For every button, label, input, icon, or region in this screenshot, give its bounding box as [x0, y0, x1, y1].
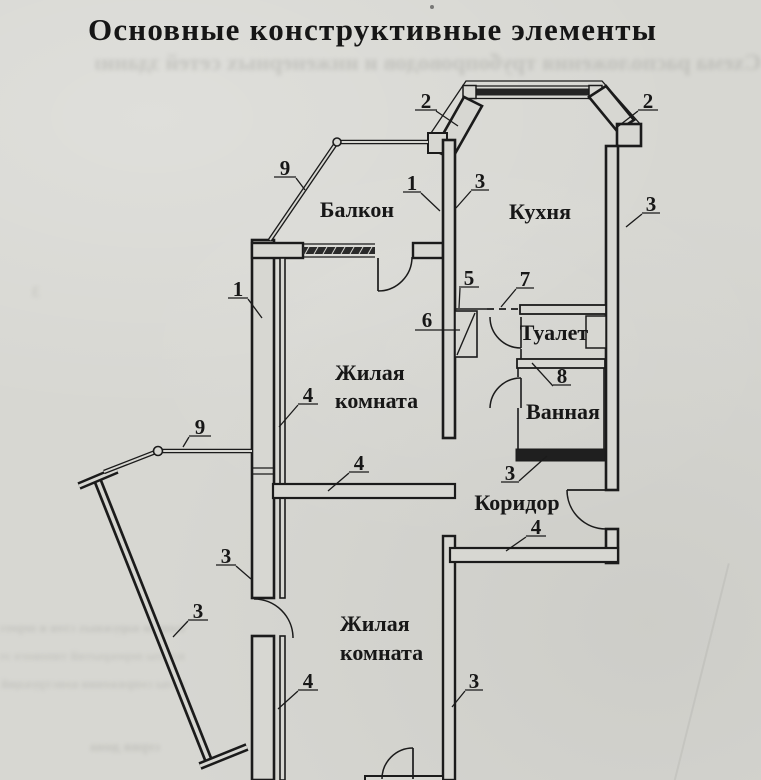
callout-3-kitchen-right: 3 [646, 192, 657, 216]
balcony1-railing [270, 138, 428, 240]
window-living1 [303, 244, 375, 257]
room-label-living2: комната [340, 640, 423, 665]
floor-plan-drawing: Балкон Кухня Жилая комната Туалет Ванная… [0, 0, 761, 780]
outer-wall-left-lower [252, 636, 274, 780]
callout-3-left-wall: 3 [221, 544, 232, 568]
wall-kitchen-right [606, 146, 618, 490]
callout-2-bay-left: 2 [421, 89, 432, 113]
callout-1-outer-wall: 1 [233, 277, 244, 301]
inner-wall-living2-lower [280, 636, 285, 780]
room-label-corridor: Коридор [474, 490, 559, 515]
vent-shaft [455, 311, 477, 357]
room-label-living1: Жилая [335, 360, 405, 385]
callout-4-living2: 4 [303, 669, 314, 693]
callout-3-kitchen-left: 3 [475, 169, 486, 193]
wall-bottom-stub [365, 776, 443, 780]
entrance-door-arc [567, 490, 606, 529]
bottom-door-arc [382, 748, 413, 779]
toilet-door-arc [490, 317, 521, 348]
pillar [617, 124, 641, 146]
wall-living1-top-right [413, 243, 443, 258]
room-label-kitchen: Кухня [509, 199, 571, 224]
duct-shaft [586, 316, 606, 348]
wall-kitchen-left [443, 140, 455, 438]
callout-8: 8 [557, 364, 568, 388]
room-label-toilet: Туалет [520, 320, 589, 345]
corridor-wall [450, 548, 618, 562]
wall-living2-right [443, 536, 455, 780]
callout-9-balcony2: 9 [195, 415, 206, 439]
railing-knob [154, 447, 163, 456]
callout-3-living2-right: 3 [469, 669, 480, 693]
railing-knob [333, 138, 341, 146]
room-label-living2: Жилая [340, 611, 410, 636]
room-label-living1: комната [335, 388, 418, 413]
callout-1-kitchen-wall: 1 [407, 171, 418, 195]
callout-6: 6 [422, 308, 433, 332]
outer-wall-left-upper [252, 240, 274, 598]
balcony2-railing [79, 447, 252, 767]
callout-4-corridor: 4 [531, 515, 542, 539]
balcony-door1-arc [378, 257, 412, 291]
callout-4-living1: 4 [303, 383, 314, 407]
callout-9-balcony1: 9 [280, 156, 291, 180]
wall-living1-top-left [252, 243, 303, 258]
bathroom-door-arc [490, 378, 521, 408]
inner-wall-leaves [280, 258, 285, 780]
callout-5: 5 [464, 266, 475, 290]
callout-2-bay-right: 2 [643, 89, 654, 113]
bathroom-bottom-wall [516, 449, 605, 461]
callout-7: 7 [520, 267, 531, 291]
callout-3-railing: 3 [193, 599, 204, 623]
room-label-bathroom: Ванная [526, 399, 600, 424]
partition-living1-bottom [273, 484, 455, 498]
balcony-door2-arc [254, 599, 293, 638]
room-label-balcony: Балкон [320, 197, 394, 222]
scanned-floor-plan-page: Схема расположения трубопроводов и инжен… [0, 0, 761, 780]
callout-4-partition: 4 [354, 451, 365, 475]
callout-3-bathroom-wall: 3 [505, 461, 516, 485]
inner-wall-living1 [280, 258, 285, 485]
inner-wall-living2-upper [280, 497, 285, 598]
